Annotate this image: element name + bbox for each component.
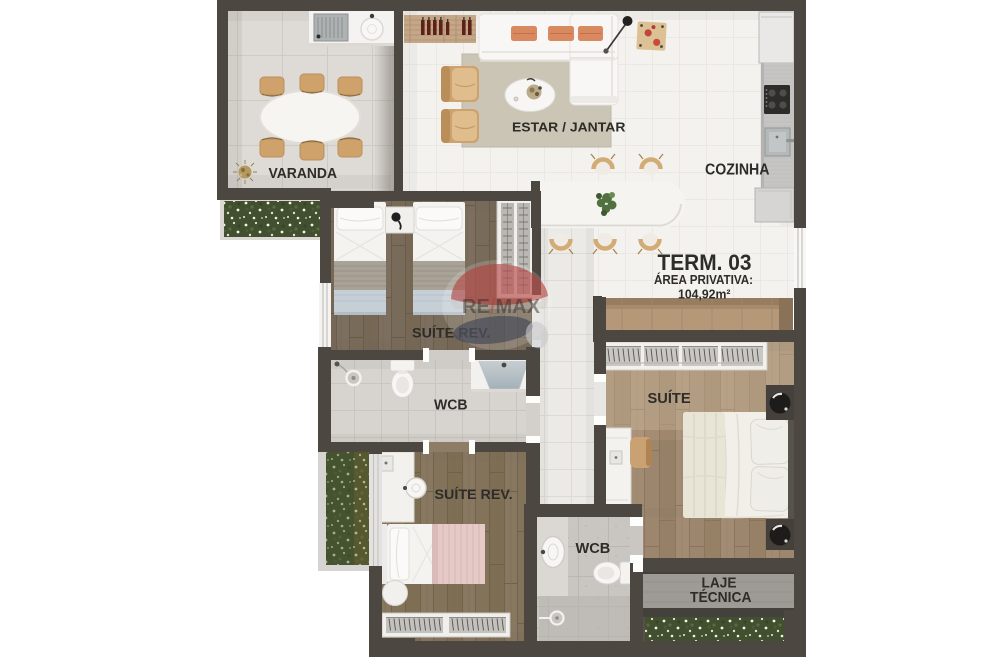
svg-text:VARANDA: VARANDA [269,166,338,182]
svg-text:COZINHA: COZINHA [705,162,770,179]
svg-text:RE/MAX: RE/MAX [462,296,541,318]
svg-text:WCB: WCB [576,541,611,557]
svg-text:TERM. 03: TERM. 03 [658,250,752,275]
svg-text:WCB: WCB [434,398,468,414]
svg-text:ÁREA PRIVATIVA:: ÁREA PRIVATIVA: [654,272,753,287]
svg-text:ESTAR / JANTAR: ESTAR / JANTAR [512,120,626,135]
svg-text:SUÍTE: SUÍTE [648,390,691,407]
svg-text:104,92m²: 104,92m² [678,288,731,302]
svg-text:TÉCNICA: TÉCNICA [690,589,752,606]
svg-text:SUÍTE REV.: SUÍTE REV. [435,486,513,502]
